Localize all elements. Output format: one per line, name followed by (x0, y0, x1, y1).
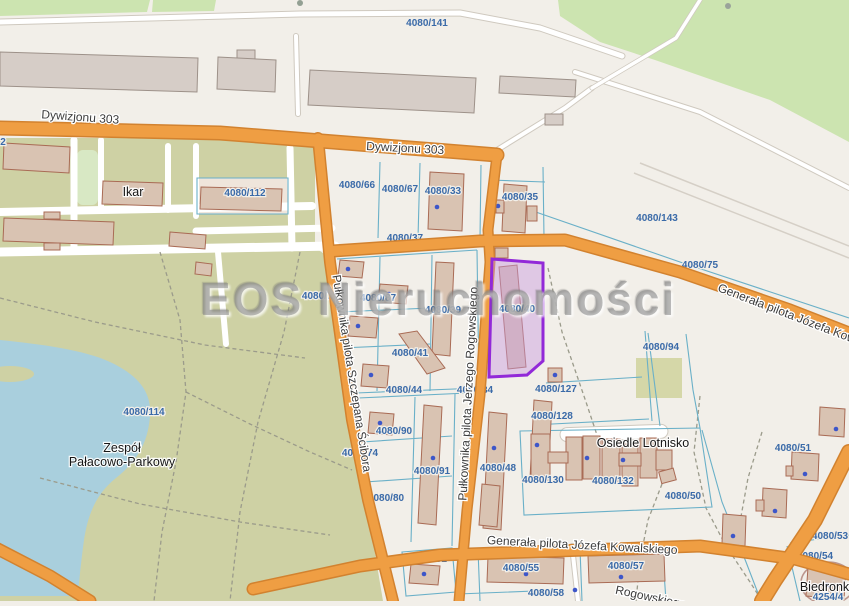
parcel-label: 4080/130 (522, 475, 564, 486)
parcel-label: 4080/127 (535, 384, 577, 395)
tree-dot (725, 3, 731, 9)
parcel-label: 4080/91 (414, 466, 451, 477)
map-viewport[interactable]: 4080/1414080/1434080/1124080/664080/6740… (0, 0, 849, 601)
place-label: Ikar (123, 185, 144, 199)
parcel-label: 4080/132 (592, 476, 634, 487)
parcel-label: 4080/41 (392, 348, 429, 359)
parcel-label: 4080/33 (425, 186, 462, 197)
parcel-label: 4080/39 (425, 305, 462, 316)
parcel-label: 4080/141 (406, 18, 448, 29)
tree-dot (297, 0, 303, 6)
place-label: Osiedle Lotnisko (597, 436, 689, 450)
parcel-label: 4080/48 (480, 463, 517, 474)
parcel-label: 4080/66 (339, 180, 376, 191)
parcel-label: 4080/112 (224, 188, 266, 199)
parcel-label: 4080/90 (376, 426, 413, 437)
parcel-label: 4080/94 (643, 342, 680, 353)
scrub-patch (636, 358, 682, 398)
parcel-label: 4080/57 (608, 561, 645, 572)
place-label: Zespół (103, 441, 141, 455)
parcel-label: 2 (0, 137, 6, 148)
map-canvas: 4080/1414080/1434080/1124080/664080/6740… (0, 0, 849, 601)
parcel-label: 4080/67 (382, 184, 419, 195)
parcel-label: 4080/143 (636, 213, 678, 224)
parcel-label: 4080/114 (123, 407, 165, 418)
parcel-label: 4080/44 (386, 385, 423, 396)
selected-parcel[interactable] (489, 259, 543, 377)
parcel-label: 4080/51 (775, 443, 812, 454)
parcel-label: 4080/128 (531, 411, 573, 422)
parcel-label: 4080/55 (503, 563, 540, 574)
place-label: Biedronka (800, 580, 849, 594)
green-strip (77, 150, 98, 205)
place-label: Pałacowo-Parkowy (69, 455, 176, 469)
parcel-label: 4080/53 (812, 531, 849, 542)
parcel-label: 4080/35 (502, 192, 539, 203)
parcel-label: 4080/50 (665, 491, 702, 502)
parcel-label: 4080/40 (499, 304, 536, 315)
parcel-label: 4080/58 (528, 588, 565, 599)
parcel-label: 4080/87 (360, 293, 397, 304)
